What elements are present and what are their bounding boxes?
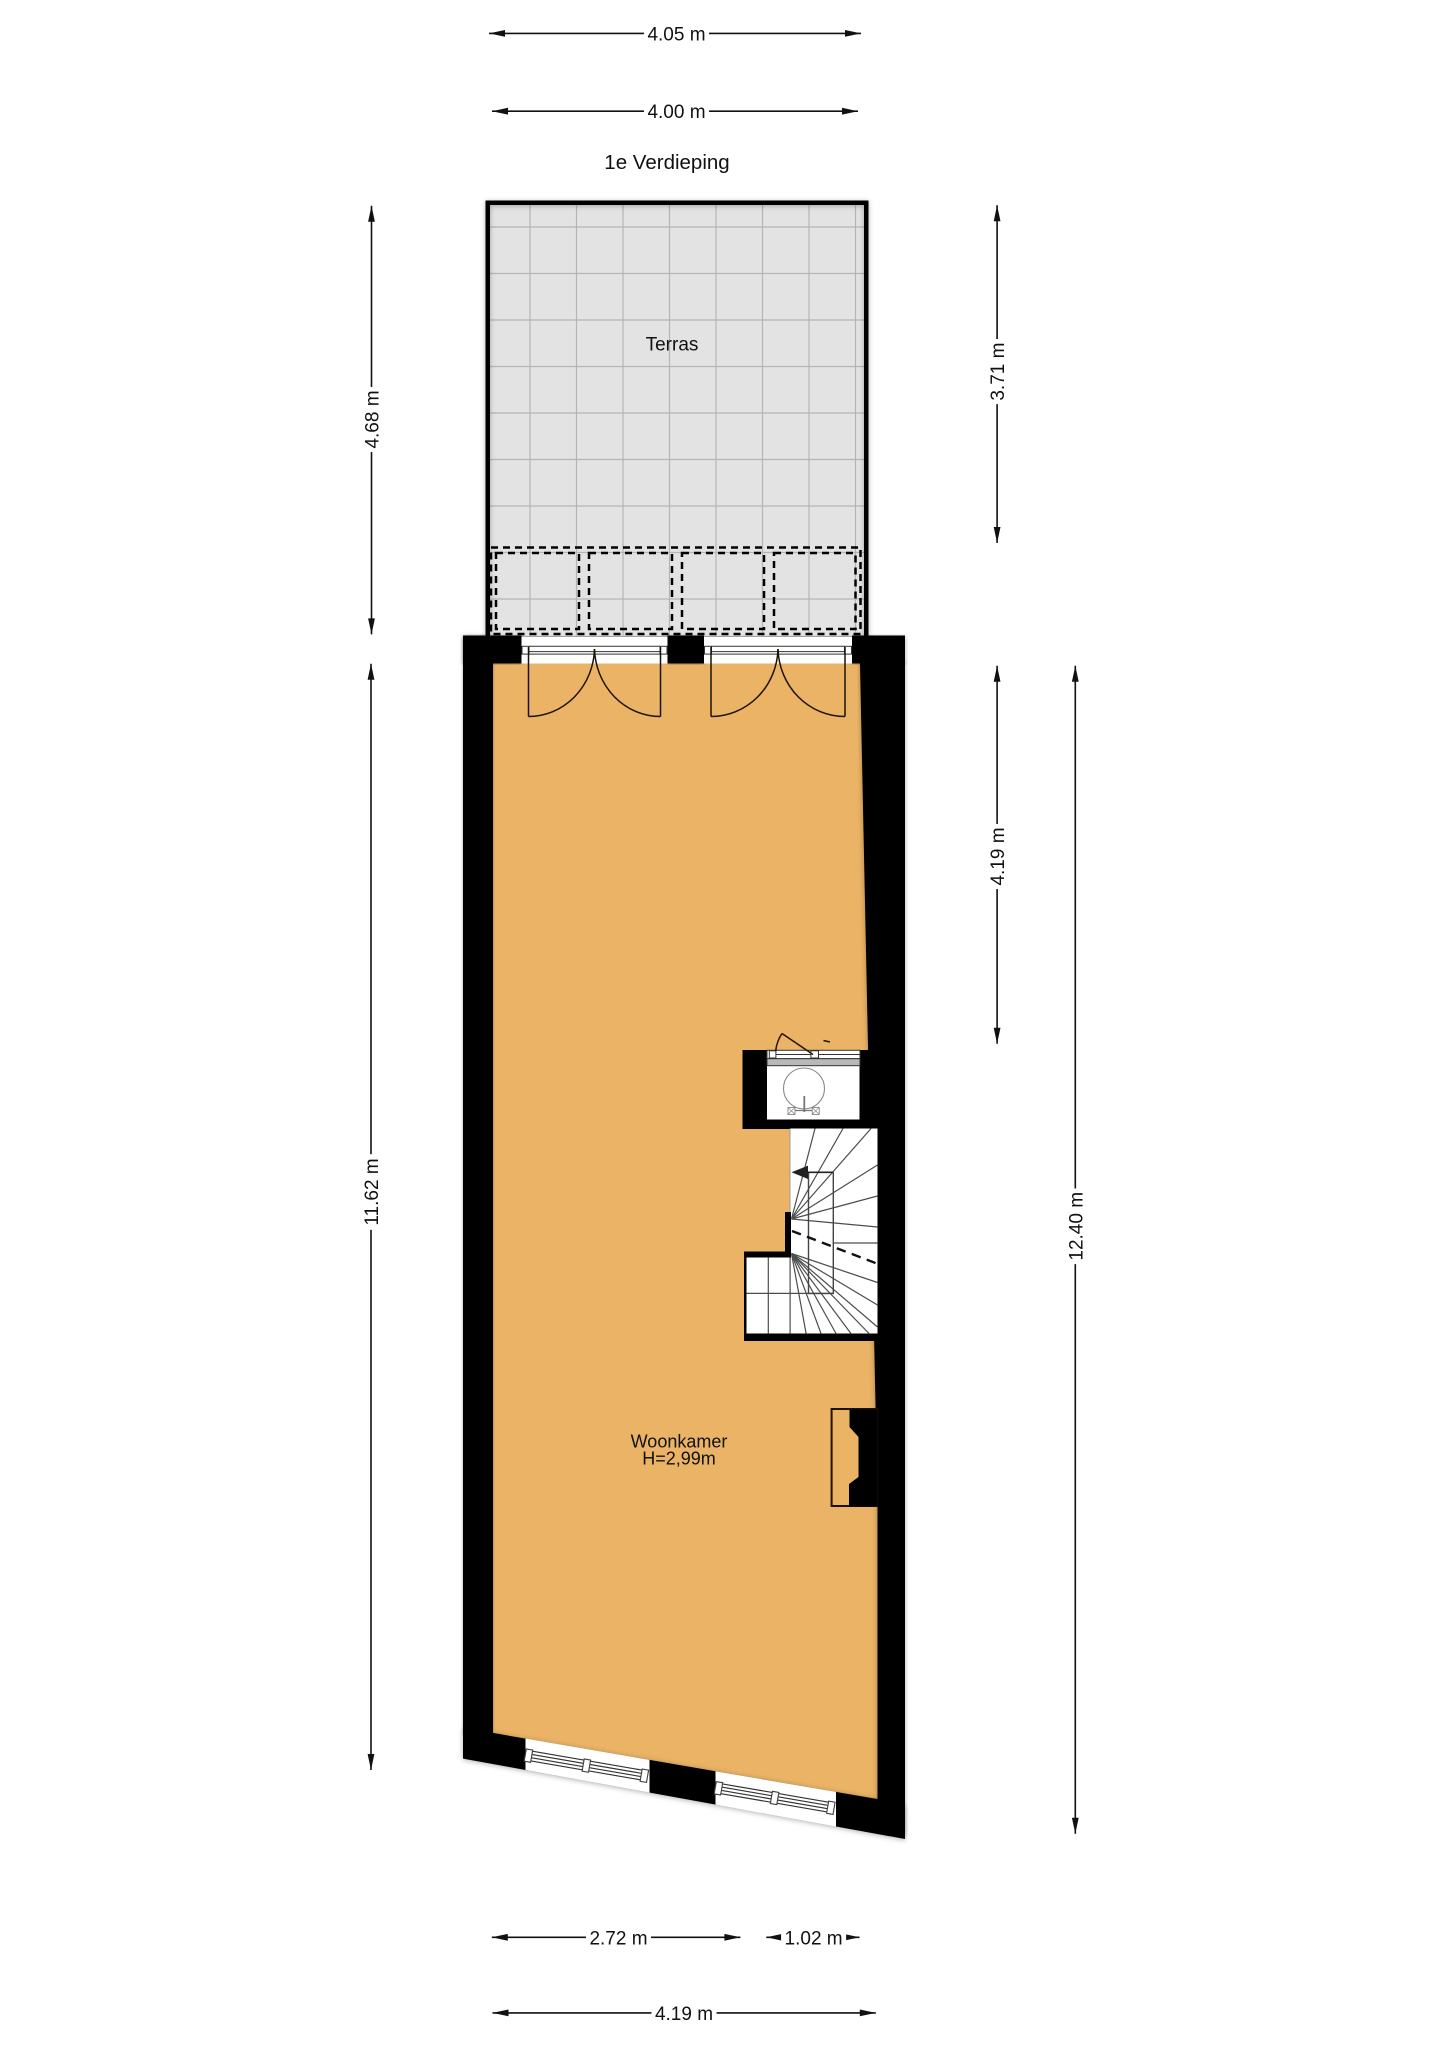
svg-text:4.00 m: 4.00 m (647, 102, 705, 123)
svg-text:Terras: Terras (646, 335, 699, 356)
svg-text:1.02 m: 1.02 m (785, 1928, 843, 1949)
svg-text:4.68 m: 4.68 m (363, 390, 384, 448)
svg-text:12.40 m: 12.40 m (1066, 1192, 1087, 1261)
svg-text:H=2,99m: H=2,99m (642, 1449, 716, 1469)
svg-text:11.62 m: 11.62 m (362, 1158, 383, 1225)
svg-text:1e Verdieping: 1e Verdieping (604, 151, 729, 174)
svg-text:3.71 m: 3.71 m (988, 343, 1009, 401)
svg-text:4.05 m: 4.05 m (647, 24, 705, 45)
svg-text:2.72 m: 2.72 m (589, 1928, 647, 1949)
svg-text:4.19 m: 4.19 m (988, 827, 1009, 885)
svg-text:4.19 m: 4.19 m (655, 2004, 713, 2025)
